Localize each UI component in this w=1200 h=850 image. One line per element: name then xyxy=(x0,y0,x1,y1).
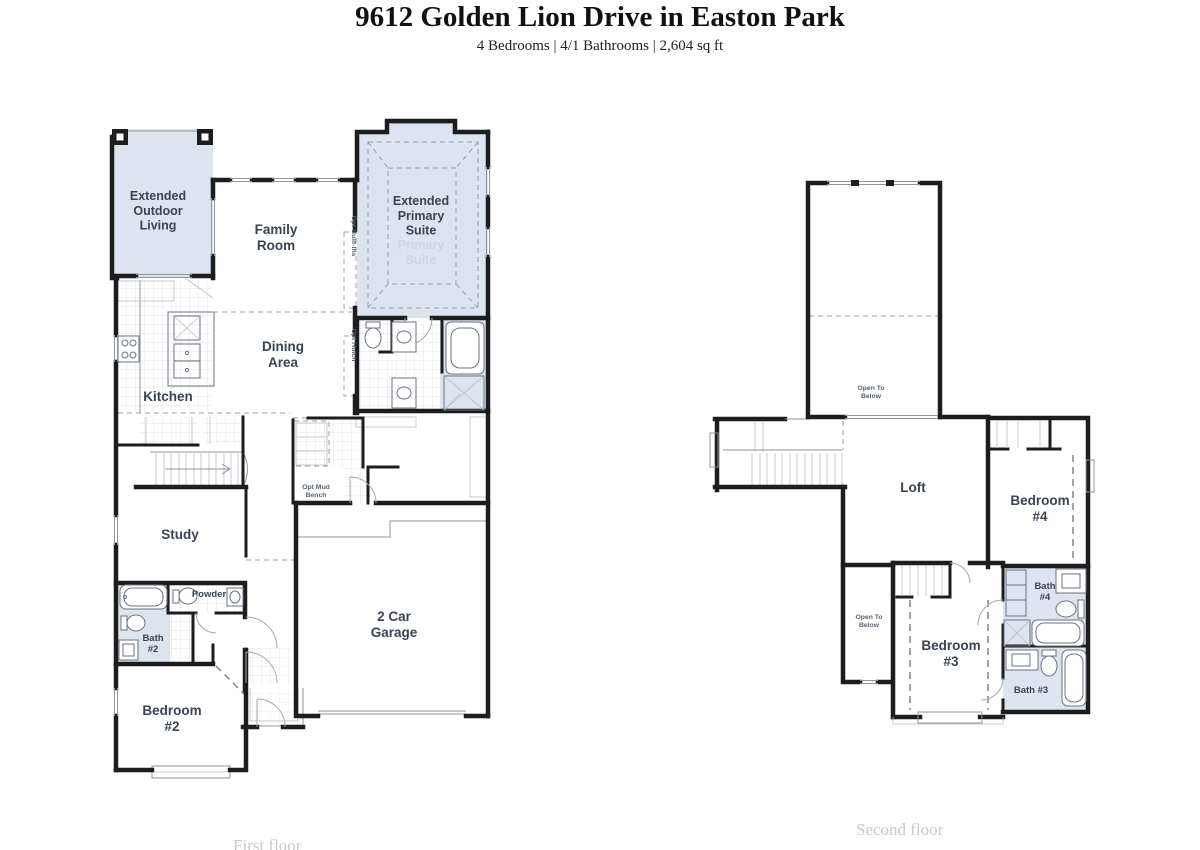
second-floor-plan: Open ToBelow Loft Bedroom#4 Bath#4 Open … xyxy=(710,180,1094,724)
staircase-first-floor xyxy=(150,452,248,487)
bath3-sink-icon xyxy=(1006,650,1038,670)
caption-second-floor: Second floor xyxy=(856,820,943,840)
label-study: Study xyxy=(161,527,199,542)
bath4-tub-icon xyxy=(1032,620,1084,646)
bath4-toilet-icon xyxy=(1056,600,1084,618)
label-2-car-garage: 2 CarGarage xyxy=(371,609,418,640)
label-open-to-below-large: Open ToBelow xyxy=(857,385,884,400)
primary-bath-vanity2 xyxy=(392,378,416,408)
first-floor-plan: ExtendedOutdoorLiving FamilyRoom Extende… xyxy=(112,120,490,778)
staircase-second-floor xyxy=(723,421,843,485)
primary-bath-toilet-icon xyxy=(365,322,381,348)
label-opt-built-ins: Opt Built-Ins xyxy=(350,216,357,257)
label-bedroom4: Bedroom#4 xyxy=(1010,493,1069,524)
label-opt-hutch: Opt Hutch xyxy=(350,329,357,362)
label-opt-mud-bench: Opt MudBench xyxy=(302,484,330,499)
bath4-sink-icon xyxy=(1056,569,1086,593)
label-loft: Loft xyxy=(900,480,926,495)
floorplan-page: 9612 Golden Lion Drive in Easton Park 4 … xyxy=(0,0,1200,850)
primary-bath-vanity1 xyxy=(392,322,416,352)
label-kitchen: Kitchen xyxy=(143,389,193,404)
bath2-sink-icon xyxy=(119,640,138,660)
label-bedroom2: Bedroom#2 xyxy=(142,703,201,734)
door-arcs-2 xyxy=(950,563,1003,700)
bath2-tub-icon xyxy=(120,585,167,609)
label-powder: Powder xyxy=(192,589,227,600)
label-bath3: Bath #3 xyxy=(1014,685,1048,696)
powder-sink-icon xyxy=(227,588,243,606)
bath3-toilet-icon xyxy=(1041,650,1057,676)
primary-bath-tub-icon xyxy=(446,322,484,374)
label-dining-area: DiningArea xyxy=(262,339,304,370)
caption-first-floor: First floor xyxy=(233,836,301,850)
bath3-tub-icon xyxy=(1062,650,1086,706)
label-family-room: FamilyRoom xyxy=(255,222,298,253)
label-open-to-below-small: Open ToBelow xyxy=(855,614,882,629)
bath2-toilet-icon xyxy=(121,615,145,631)
floorplan-canvas: ExtendedOutdoorLiving FamilyRoom Extende… xyxy=(0,0,1200,850)
label-bedroom3: Bedroom#3 xyxy=(921,638,980,669)
